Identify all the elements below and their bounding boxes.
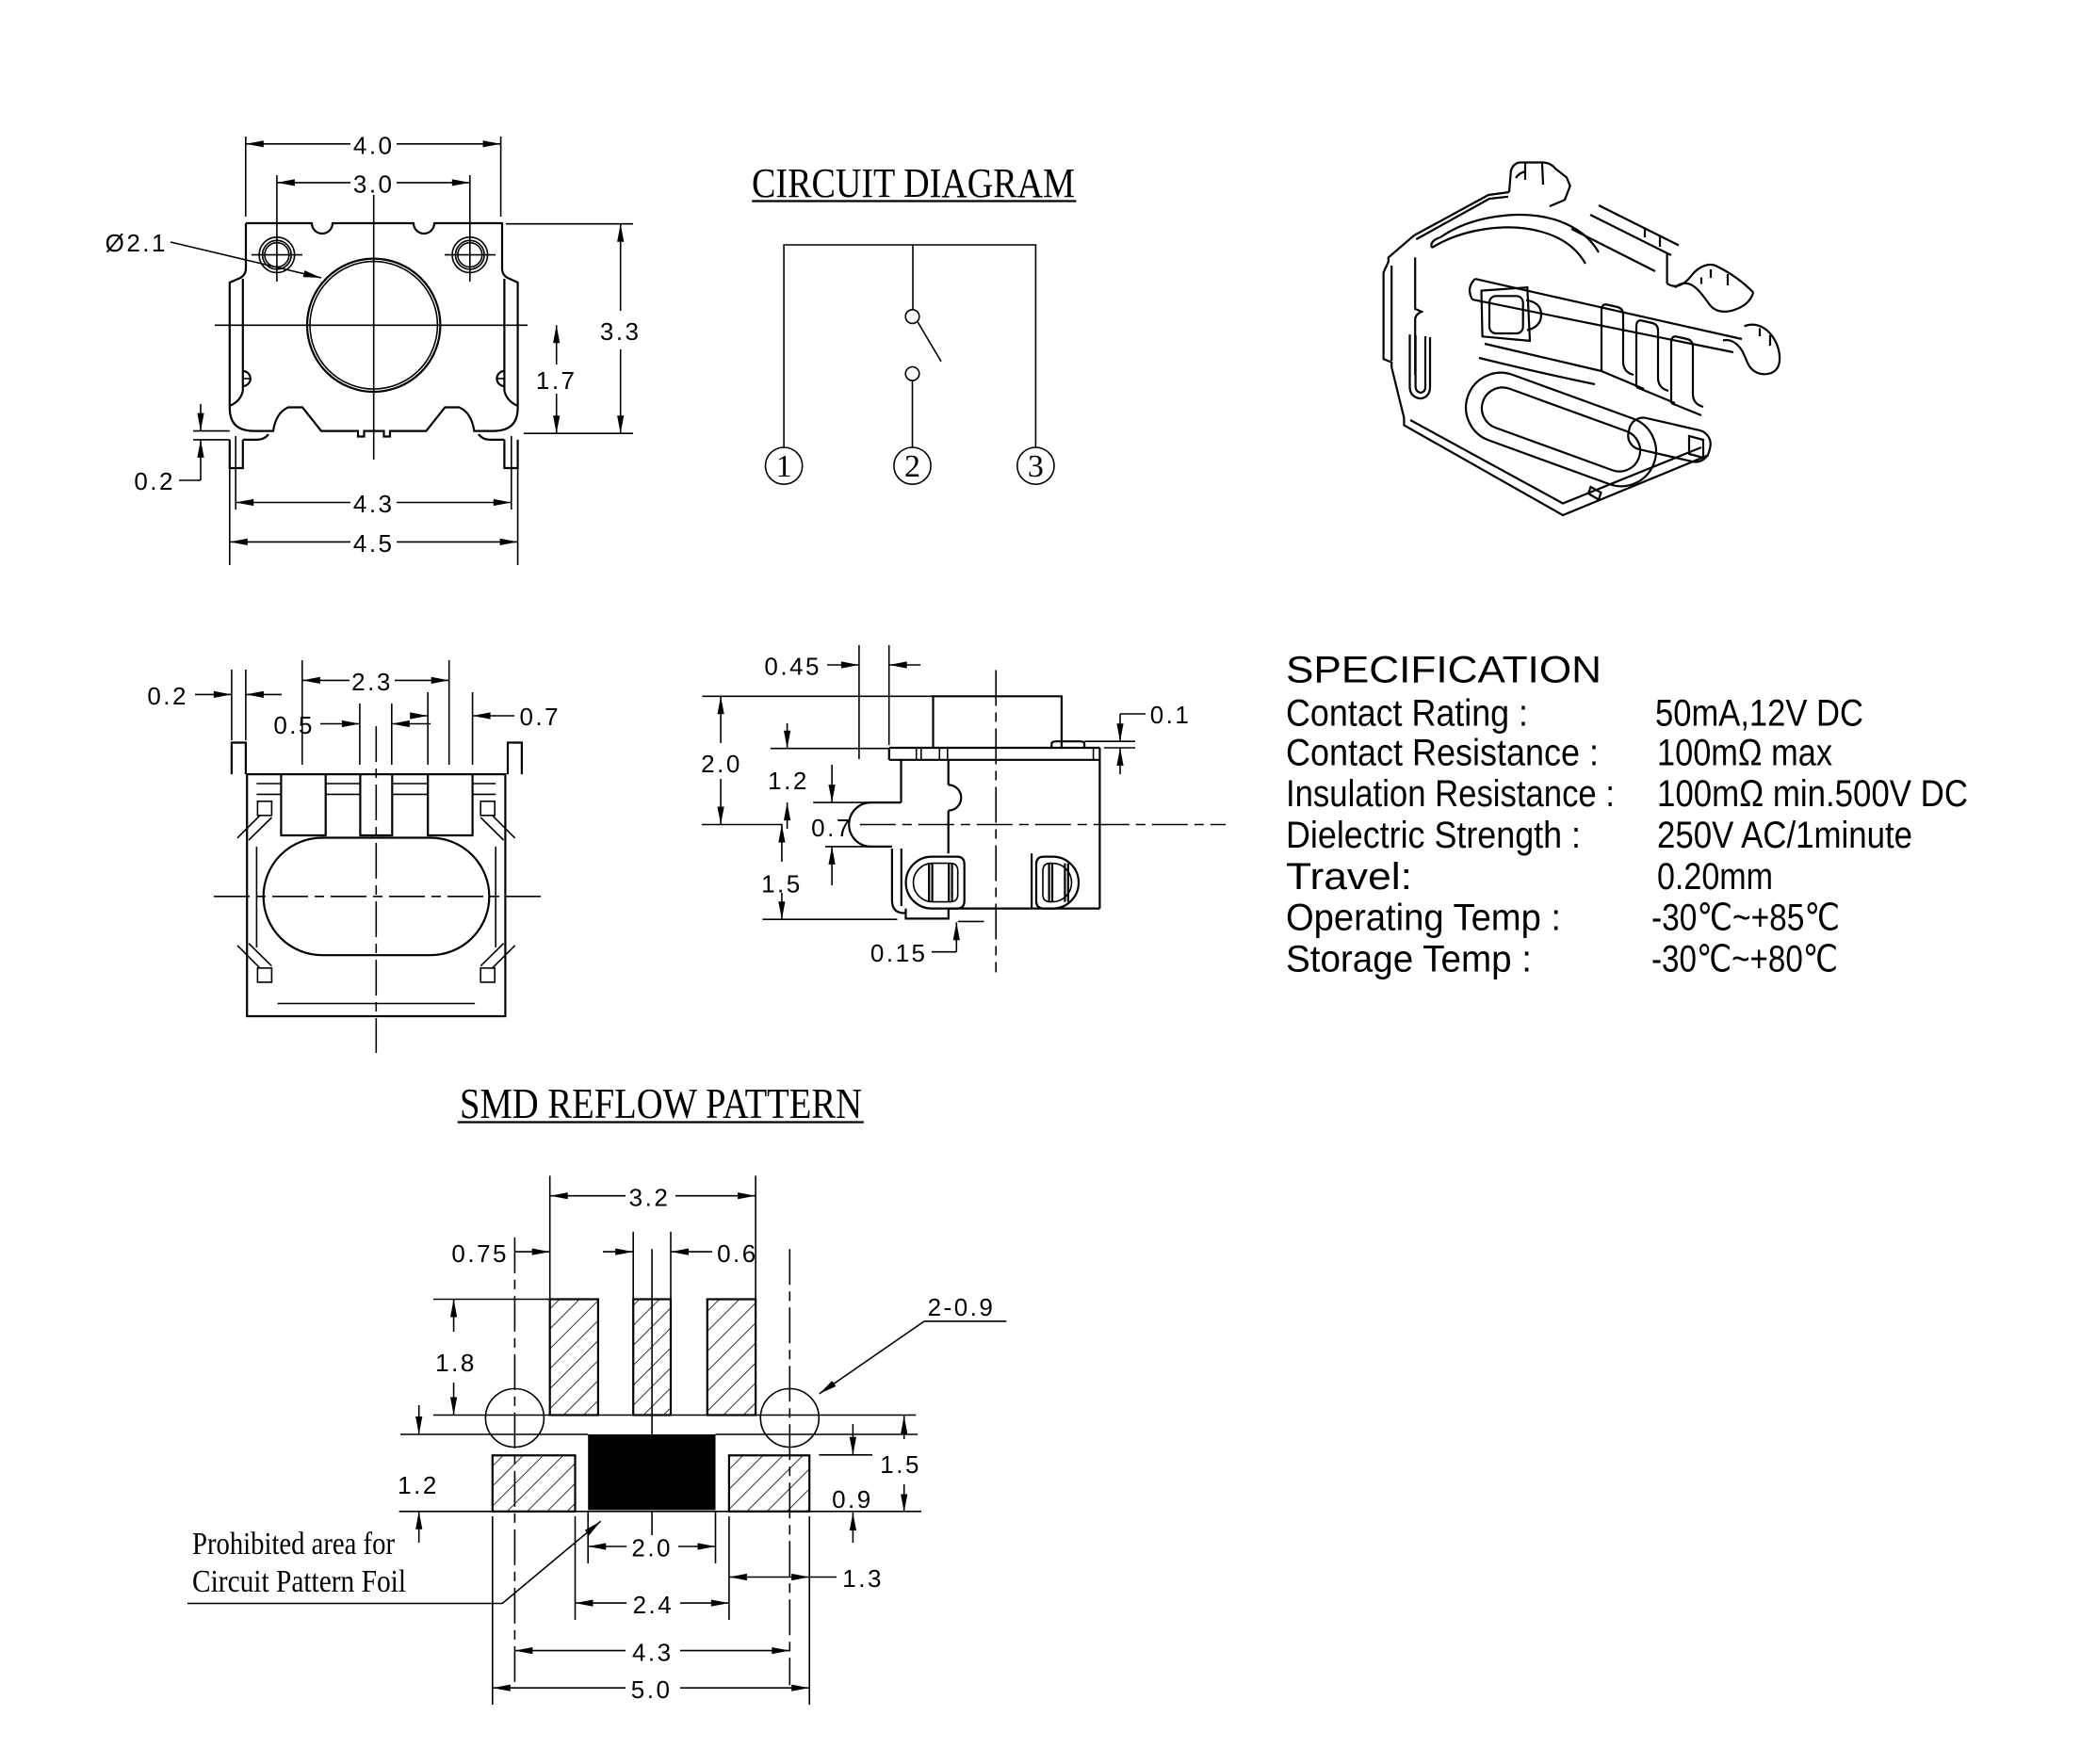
svg-text:SPECIFICATION: SPECIFICATION bbox=[1286, 650, 1601, 691]
svg-text:Ø2.1: Ø2.1 bbox=[106, 229, 168, 257]
svg-text:4.5: 4.5 bbox=[353, 529, 395, 558]
svg-text:Insulation Resistance :: Insulation Resistance : bbox=[1286, 773, 1615, 815]
svg-text:3: 3 bbox=[1028, 449, 1044, 484]
svg-text:5.0: 5.0 bbox=[631, 1675, 673, 1704]
svg-text:Storage Temp :: Storage Temp : bbox=[1286, 939, 1532, 980]
svg-text:50mA,12V DC: 50mA,12V DC bbox=[1655, 693, 1863, 735]
svg-text:3.3: 3.3 bbox=[600, 317, 642, 346]
svg-text:Circuit Pattern Foil: Circuit Pattern Foil bbox=[192, 1564, 406, 1599]
svg-text:Operating Temp :: Operating Temp : bbox=[1286, 898, 1561, 939]
svg-text:Dielectric Strength :: Dielectric Strength : bbox=[1286, 815, 1581, 856]
svg-text:0.7: 0.7 bbox=[811, 814, 853, 842]
svg-text:2: 2 bbox=[904, 449, 920, 484]
svg-text:CIRCUIT DIAGRAM: CIRCUIT DIAGRAM bbox=[752, 160, 1075, 206]
svg-text:4.3: 4.3 bbox=[353, 490, 395, 518]
svg-text:Prohibited area for: Prohibited area for bbox=[192, 1527, 396, 1562]
svg-text:2.0: 2.0 bbox=[701, 750, 742, 778]
svg-text:Contact Resistance :: Contact Resistance : bbox=[1286, 732, 1599, 773]
svg-text:2.0: 2.0 bbox=[631, 1534, 673, 1562]
svg-text:-30℃~+85℃: -30℃~+85℃ bbox=[1651, 898, 1840, 939]
svg-text:0.2: 0.2 bbox=[147, 682, 188, 710]
svg-text:SMD REFLOW PATTERN: SMD REFLOW PATTERN bbox=[460, 1079, 862, 1127]
svg-text:2.3: 2.3 bbox=[351, 668, 393, 696]
svg-text:Travel:: Travel: bbox=[1286, 856, 1412, 898]
svg-text:1.5: 1.5 bbox=[761, 870, 803, 898]
svg-text:-30℃~+80℃: -30℃~+80℃ bbox=[1651, 939, 1838, 980]
svg-text:2-0.9: 2-0.9 bbox=[928, 1293, 996, 1321]
svg-text:1.2: 1.2 bbox=[398, 1471, 439, 1499]
svg-text:1.7: 1.7 bbox=[536, 366, 577, 395]
svg-text:1.5: 1.5 bbox=[880, 1450, 921, 1479]
svg-text:4.3: 4.3 bbox=[632, 1638, 674, 1666]
svg-text:0.7: 0.7 bbox=[520, 703, 561, 731]
svg-text:1.2: 1.2 bbox=[768, 767, 809, 795]
svg-text:0.6: 0.6 bbox=[717, 1239, 758, 1268]
svg-text:Contact Rating :: Contact Rating : bbox=[1286, 693, 1528, 735]
svg-text:0.75: 0.75 bbox=[451, 1239, 509, 1268]
svg-text:0.9: 0.9 bbox=[832, 1485, 873, 1513]
svg-text:2.4: 2.4 bbox=[633, 1591, 675, 1619]
svg-text:250V AC/1minute: 250V AC/1minute bbox=[1657, 815, 1912, 856]
svg-text:4.0: 4.0 bbox=[353, 132, 395, 160]
svg-text:0.2: 0.2 bbox=[134, 467, 175, 495]
svg-text:3.0: 3.0 bbox=[353, 170, 395, 199]
svg-text:0.20mm: 0.20mm bbox=[1657, 856, 1773, 898]
svg-text:0.45: 0.45 bbox=[764, 653, 821, 681]
svg-text:1.3: 1.3 bbox=[842, 1564, 884, 1593]
svg-text:1.8: 1.8 bbox=[435, 1349, 477, 1377]
svg-text:0.1: 0.1 bbox=[1150, 701, 1192, 729]
svg-text:1: 1 bbox=[776, 449, 792, 484]
svg-text:3.2: 3.2 bbox=[629, 1184, 671, 1212]
svg-text:0.15: 0.15 bbox=[870, 939, 928, 967]
svg-text:100mΩ min.500V DC: 100mΩ min.500V DC bbox=[1657, 773, 1968, 815]
svg-text:0.5: 0.5 bbox=[273, 711, 315, 739]
svg-text:100mΩ max: 100mΩ max bbox=[1657, 732, 1832, 773]
